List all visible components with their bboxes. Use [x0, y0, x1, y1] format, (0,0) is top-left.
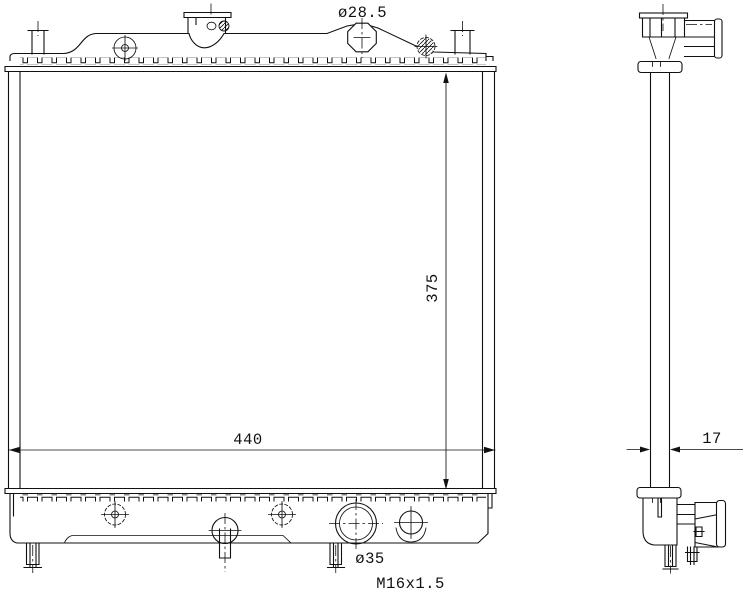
side-top-header-plate — [638, 62, 682, 73]
dim-filler-diameter-label: ø28.5 — [338, 4, 387, 22]
dim-core-height-label: 375 — [424, 273, 442, 302]
front-mounting-legs — [24, 543, 345, 568]
front-top-right-pin — [415, 35, 437, 58]
front-core-side-channels — [9, 72, 495, 489]
front-bottom-boss-right — [269, 502, 296, 528]
front-bottom-boss-left — [102, 502, 129, 528]
drain-crosshair — [395, 507, 428, 539]
side-drain-plug — [686, 547, 700, 565]
side-outlet-end-cap — [717, 501, 726, 548]
side-bottom-header-ticks — [653, 498, 661, 503]
boss-crosshair — [269, 502, 296, 528]
front-drain-port — [395, 507, 428, 543]
dim-arrow-left — [9, 447, 20, 453]
dim-arrow-right-in — [640, 447, 650, 453]
boss-crosshair — [102, 502, 129, 528]
front-cap-detail-ellipse — [207, 22, 216, 30]
dim-core-height: 375 — [424, 73, 449, 490]
dim-core-depth: 17 — [627, 430, 743, 453]
dim-core-width-label: 440 — [233, 431, 262, 449]
front-top-mounting-boss — [113, 36, 138, 61]
side-view — [637, 4, 726, 574]
outlet-crosshair — [329, 499, 383, 550]
dim-core-depth-label: 17 — [702, 430, 722, 448]
boss-crosshair — [113, 36, 138, 61]
front-cap-hatched-plug — [219, 21, 229, 31]
side-cap-lid — [640, 13, 688, 18]
side-cap-body — [643, 18, 685, 37]
dim-outlet-diameter-label: ø35 — [355, 550, 384, 568]
front-header-plates — [5, 67, 496, 494]
dim-arrow-down — [443, 479, 449, 490]
dim-arrow-right — [484, 447, 495, 453]
radiator-drawing: ø28.5 375 440 17 ø35 M16x1.5 — [0, 0, 743, 597]
side-inlet-pipe-end-cap — [715, 19, 723, 58]
dim-core-width: 440 — [9, 431, 495, 453]
front-outlet-port — [329, 499, 383, 550]
side-core-channels — [651, 73, 670, 488]
side-outlet-assembly — [677, 503, 718, 548]
front-leg-centerlines — [33, 545, 336, 573]
side-filler-funnel — [649, 37, 676, 59]
front-bottom-tank-ledge — [65, 536, 292, 544]
technical-drawing-canvas: ø28.5 375 440 17 ø35 M16x1.5 — [0, 0, 743, 597]
pin-crosshair — [415, 35, 437, 58]
side-bottom-header-plate — [637, 488, 681, 499]
front-filler-neck — [348, 18, 377, 58]
dim-drain-thread-label: M16x1.5 — [376, 575, 445, 593]
side-bottom-tank-outline — [643, 498, 677, 545]
front-bottom-fin-serration — [20, 495, 486, 502]
side-inlet-pipe — [685, 21, 717, 57]
front-view — [5, 4, 496, 574]
front-top-fin-serration — [20, 58, 486, 66]
dim-arrow-left-in — [670, 447, 680, 453]
dim-arrow-up — [443, 73, 449, 84]
